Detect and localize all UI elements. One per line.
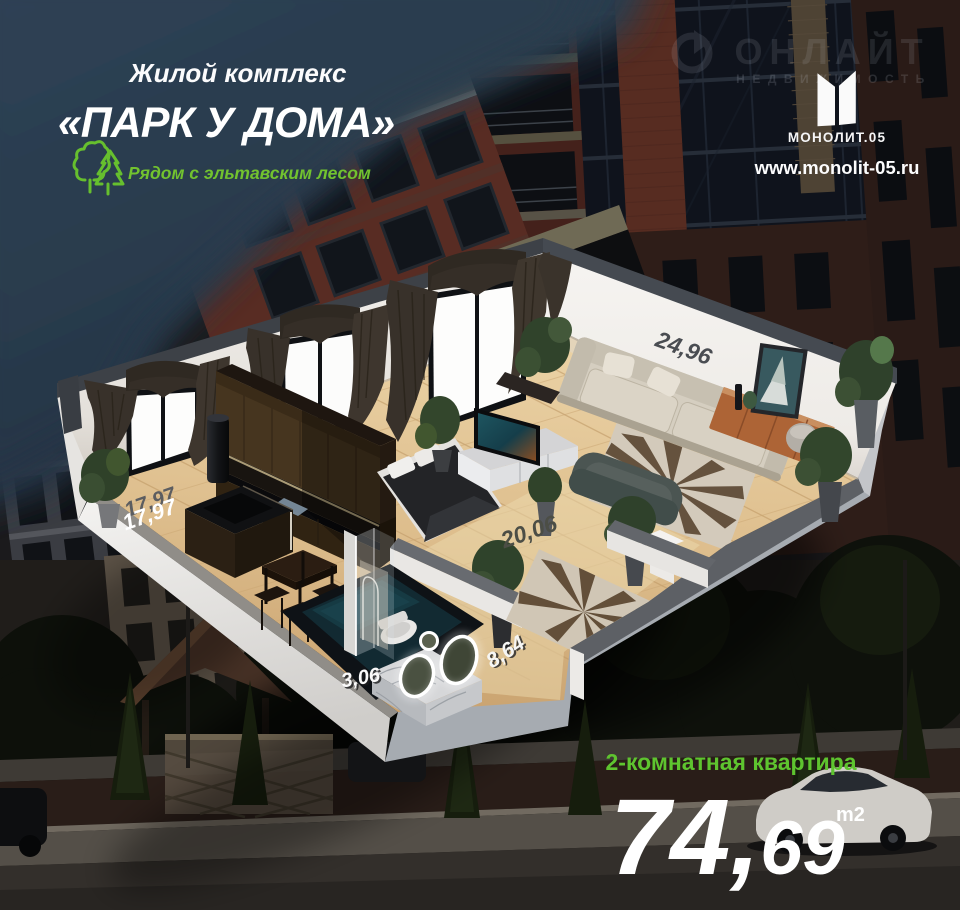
svg-text:Жилой комплекс: Жилой комплекс: [128, 58, 347, 88]
svg-text:www.monolit-05.ru: www.monolit-05.ru: [754, 157, 920, 178]
svg-text:Рядом с эльтавским лесом: Рядом с эльтавским лесом: [128, 163, 371, 183]
svg-text:МОНОЛИТ.05: МОНОЛИТ.05: [788, 130, 886, 145]
svg-text:ОНЛАЙТ: ОНЛАЙТ: [734, 30, 929, 72]
svg-text:m2: m2: [836, 804, 865, 826]
svg-text:«ПАРК У ДОМА»: «ПАРК У ДОМА»: [58, 99, 394, 147]
svg-text:НЕДВИЖИМОСТЬ: НЕДВИЖИМОСТЬ: [736, 72, 932, 86]
svg-text:2-комнатная квартира: 2-комнатная квартира: [606, 749, 857, 775]
